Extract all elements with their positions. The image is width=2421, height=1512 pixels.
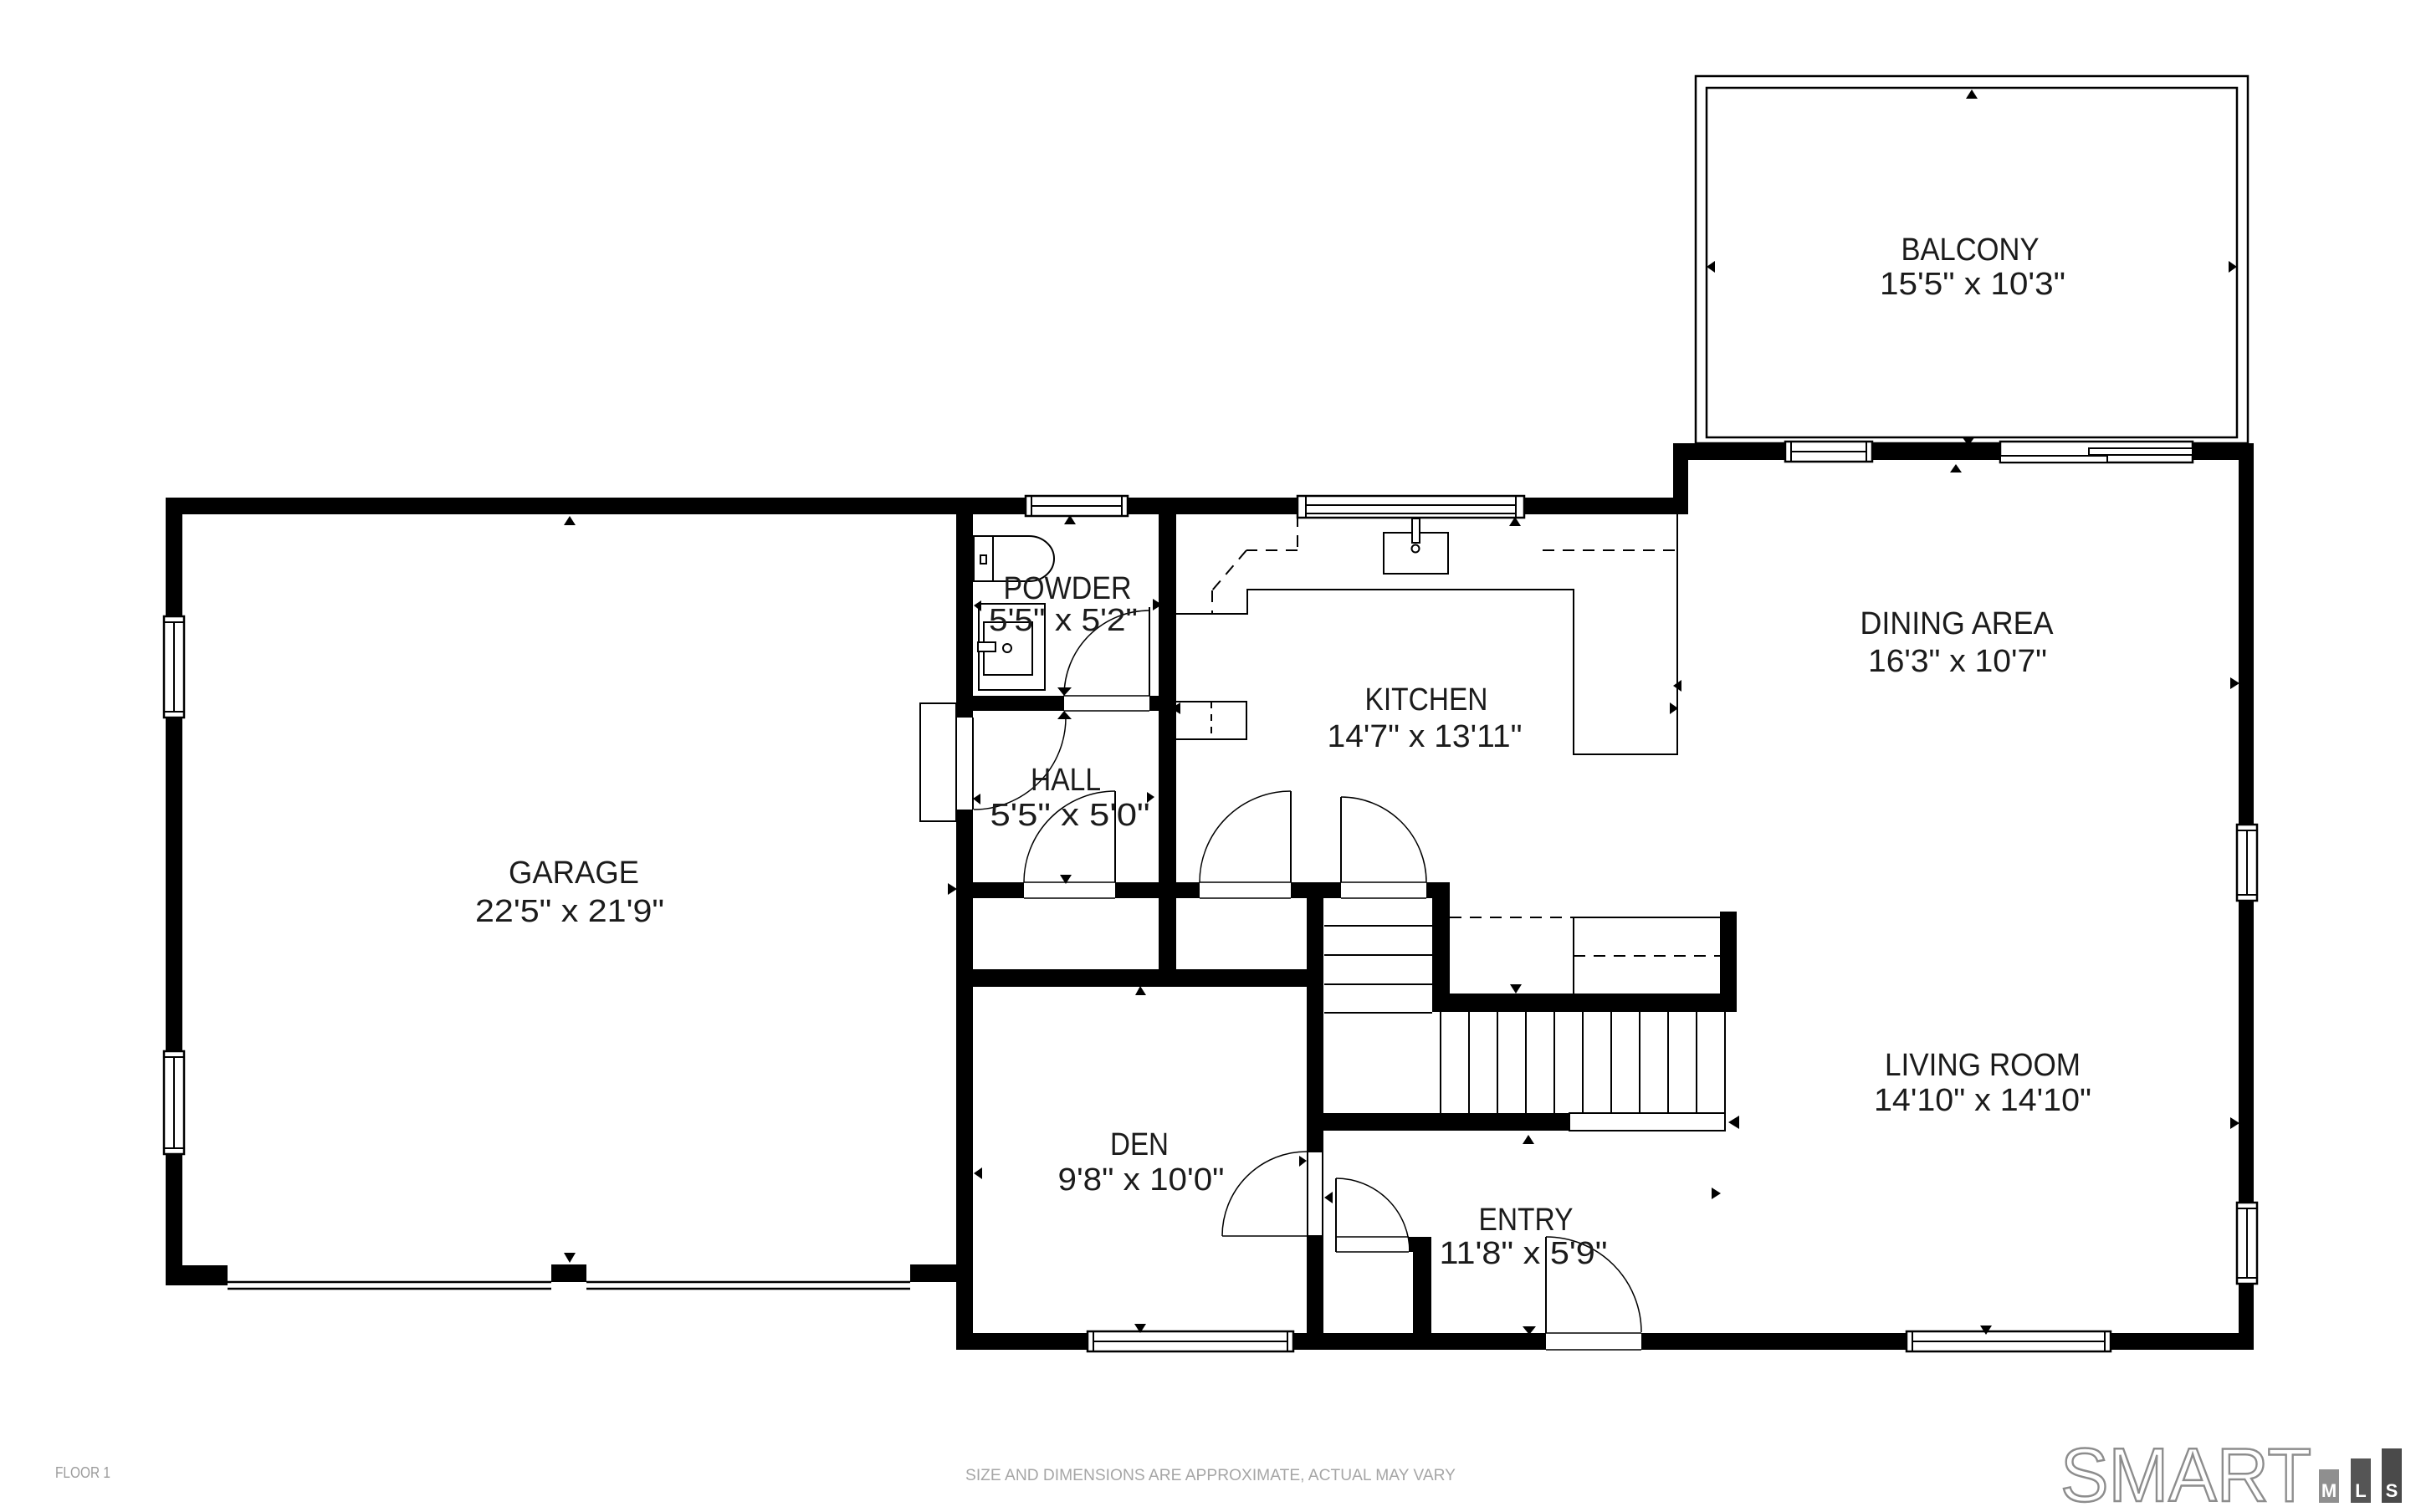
svg-text:SMART: SMART bbox=[2060, 1433, 2311, 1512]
svg-text:11'8" x 5'9": 11'8" x 5'9" bbox=[1440, 1236, 1608, 1271]
svg-text:KITCHEN: KITCHEN bbox=[1365, 682, 1488, 718]
svg-text:HALL: HALL bbox=[1031, 763, 1101, 798]
svg-text:POWDER: POWDER bbox=[1004, 571, 1132, 606]
svg-text:GARAGE: GARAGE bbox=[509, 856, 639, 891]
svg-text:16'3" x 10'7": 16'3" x 10'7" bbox=[1868, 644, 2047, 679]
svg-text:BALCONY: BALCONY bbox=[1901, 232, 2040, 268]
svg-text:LIVING ROOM: LIVING ROOM bbox=[1885, 1048, 2081, 1083]
svg-text:DEN: DEN bbox=[1110, 1127, 1169, 1162]
svg-text:14'7" x 13'11": 14'7" x 13'11" bbox=[1328, 719, 1523, 754]
svg-text:5'5" x 5'0": 5'5" x 5'0" bbox=[990, 798, 1150, 833]
svg-text:ENTRY: ENTRY bbox=[1479, 1203, 1574, 1238]
svg-text:5'5" x 5'2": 5'5" x 5'2" bbox=[989, 603, 1138, 638]
svg-text:15'5" x 10'3": 15'5" x 10'3" bbox=[1880, 267, 2065, 302]
svg-text:22'5" x 21'9": 22'5" x 21'9" bbox=[475, 894, 664, 929]
svg-text:9'8" x 10'0": 9'8" x 10'0" bbox=[1058, 1162, 1225, 1198]
svg-text:S: S bbox=[2386, 1480, 2398, 1501]
svg-text:FLOOR 1: FLOOR 1 bbox=[55, 1464, 110, 1481]
svg-text:DINING AREA: DINING AREA bbox=[1861, 606, 2055, 641]
svg-text:M: M bbox=[2321, 1480, 2337, 1501]
svg-text:SIZE AND DIMENSIONS ARE APPROX: SIZE AND DIMENSIONS ARE APPROXIMATE, ACT… bbox=[965, 1466, 1456, 1484]
svg-text:L: L bbox=[2355, 1480, 2366, 1501]
svg-text:14'10" x 14'10": 14'10" x 14'10" bbox=[1874, 1083, 2091, 1118]
